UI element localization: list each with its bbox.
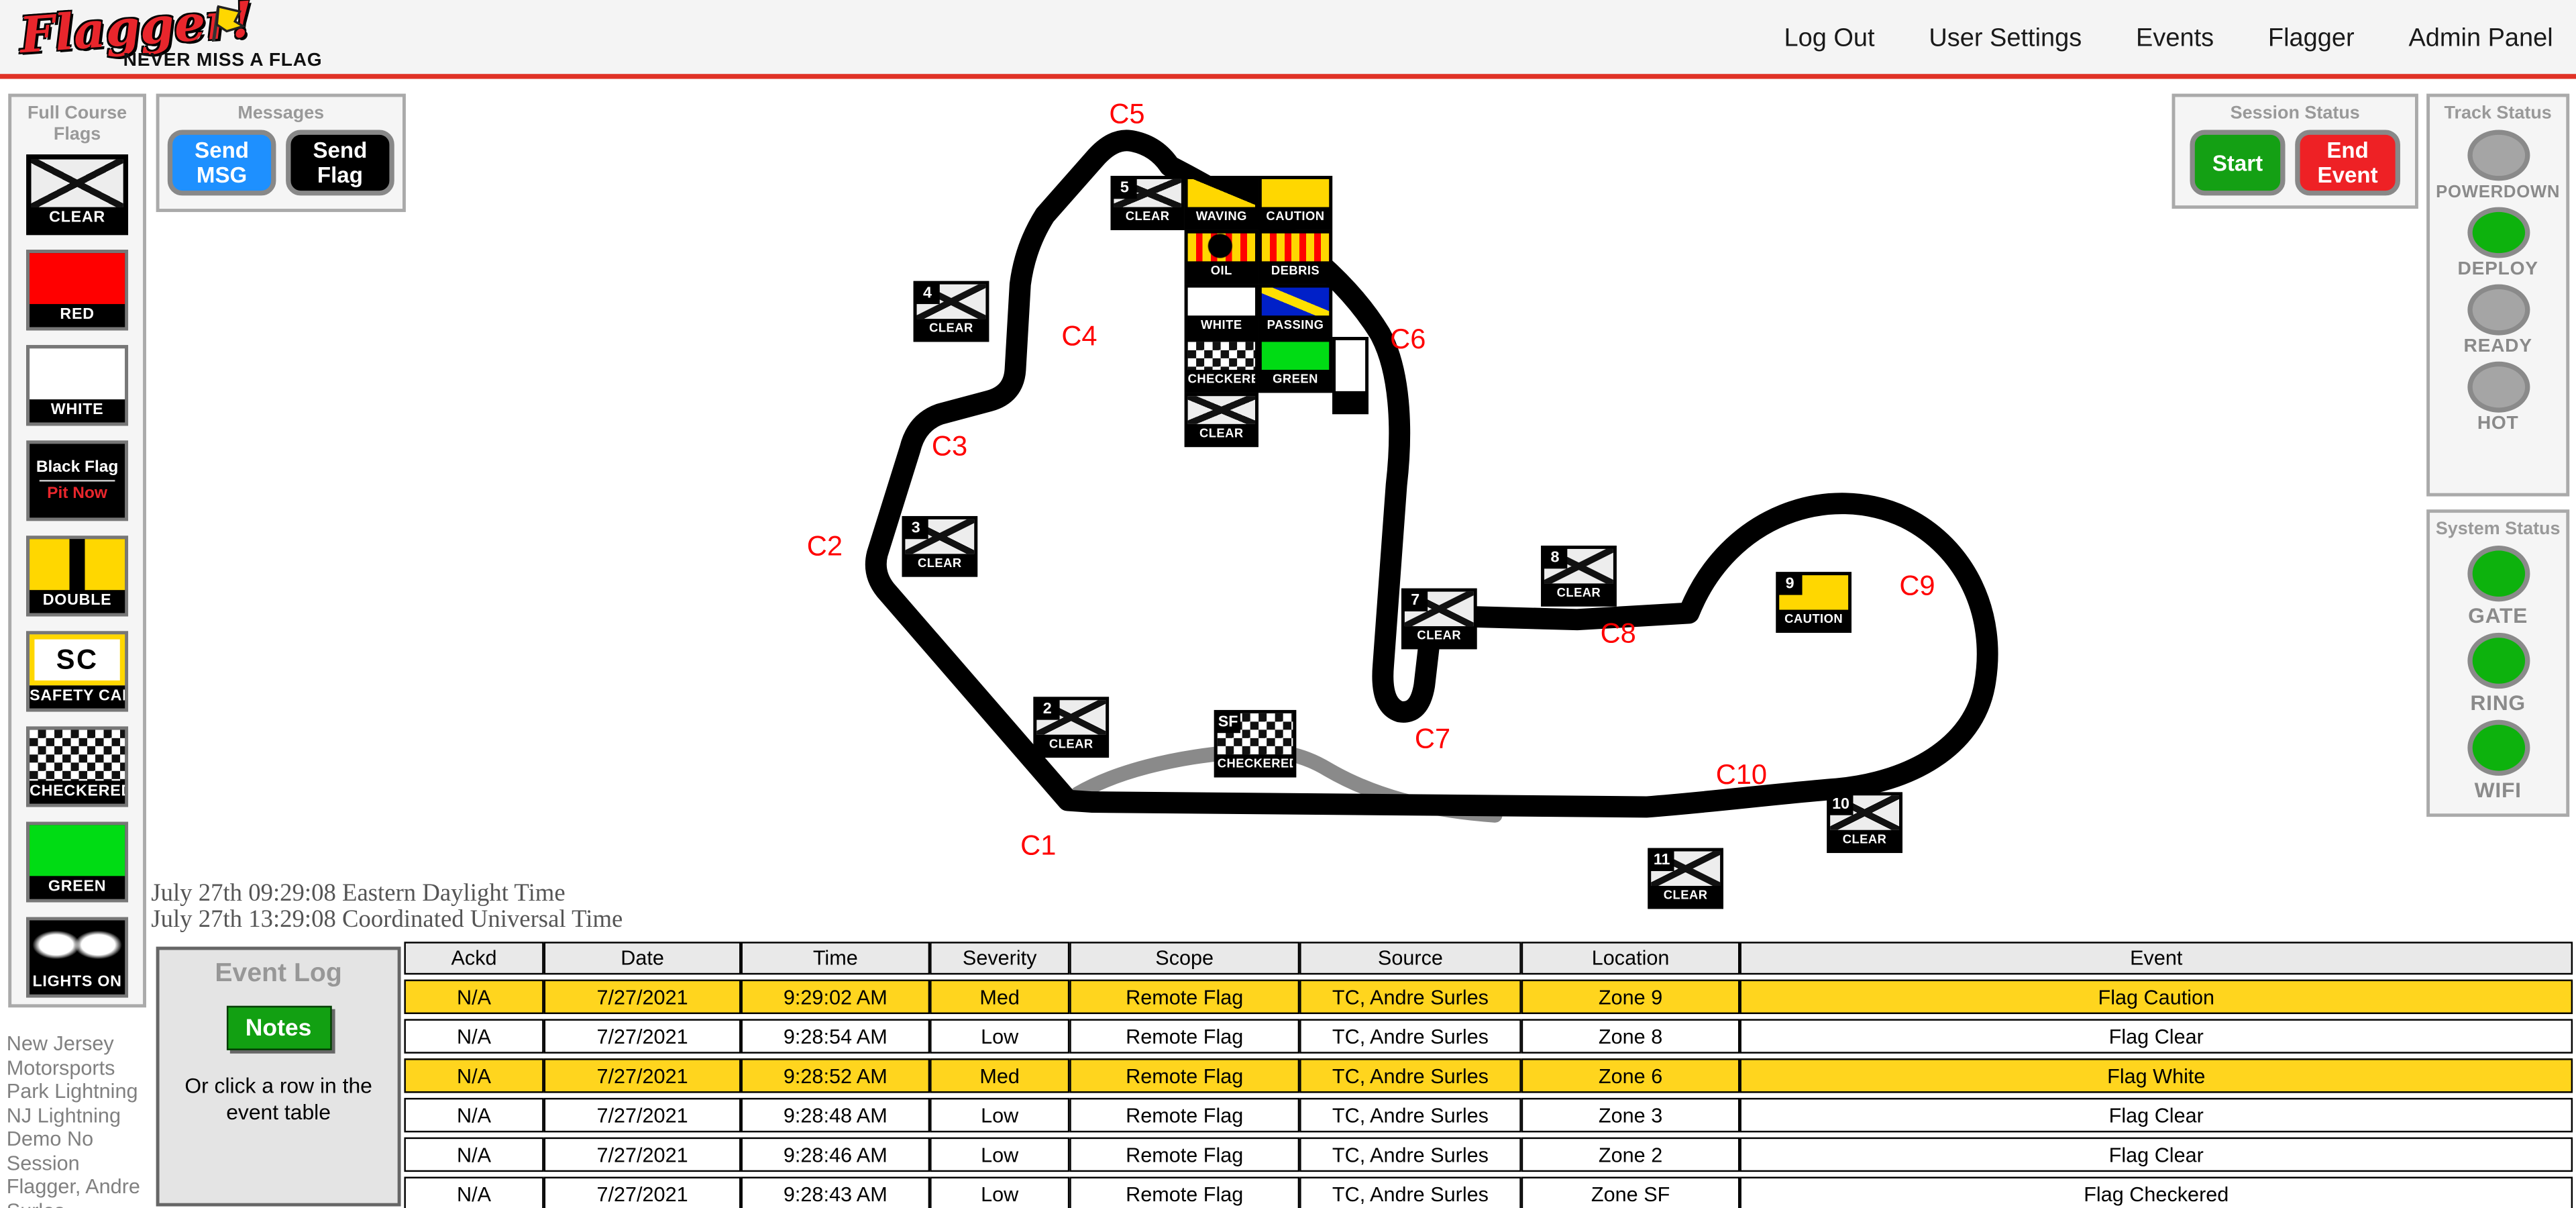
corner-label-C10: C10 [1716,758,1767,790]
station-flag-label: CLEAR [1036,735,1106,754]
passing-flag-face [1262,288,1329,316]
station-8-flag[interactable]: 8CLEAR [1541,546,1617,607]
station-flag-label: CLEAR [1114,207,1181,227]
event-row[interactable]: N/A7/27/20219:28:52 AMMedRemote FlagTC, … [404,1058,2573,1093]
event-cell-ackd: N/A [404,1019,543,1053]
flag-button-checkered[interactable]: CHECKERED [26,726,128,807]
flag-button-black-pit[interactable]: Black FlagPit Now [26,440,128,521]
track-status-title: Track Status [2430,103,2566,125]
station5-option-clear[interactable]: 5CLEAR [1111,176,1185,230]
system-status-panel: System Status GATERINGWIFI [2426,509,2569,817]
session-status-title: Session Status [2175,103,2415,125]
event-cell-severity: Med [930,980,1069,1014]
flag-button-lights-on[interactable]: LIGHTS ON [26,917,128,998]
station-11-flag[interactable]: 11CLEAR [1648,848,1723,909]
logo-flag-icon [204,1,247,44]
nav-log-out[interactable]: Log Out [1784,25,1874,54]
station5-option-green[interactable]: GREEN [1258,338,1332,393]
event-log-title: Event Log [160,960,398,989]
status-indicator-powerdown: POWERDOWN [2430,130,2566,202]
double-flag-face [30,539,125,590]
red-flag-face [30,253,125,304]
status-light-ready [2467,285,2529,336]
event-cell-location: Zone 8 [1521,1019,1740,1053]
event-cell-date: 7/27/2021 [544,1019,741,1053]
station-flag-label: CLEAR [1651,886,1720,905]
status-light-deploy [2467,207,2529,258]
event-cell-time: 9:28:54 AM [741,1019,930,1053]
station-flag-label: CLEAR [1830,830,1899,850]
checkered-flag-face [30,729,125,781]
station-4-flag[interactable]: 4CLEAR [914,281,989,342]
status-light-ring [2467,633,2529,689]
event-cell-location: Zone SF [1521,1176,1740,1208]
divider [40,480,115,481]
status-light-wifi [2467,720,2529,776]
station-flag-label: DEBRIS [1262,261,1329,281]
pit-now-label: Pit Now [47,485,107,503]
full-course-flags-title: Full Course Flags [19,103,134,146]
oil-flag-face [1188,234,1255,262]
flag-button-double[interactable]: DOUBLE [26,536,128,616]
event-cell-source: TC, Andre Surles [1299,980,1521,1014]
flagger-app: Flagger! NEVER MISS A FLAG Log OutUser S… [0,0,2576,1208]
station-flag-label: OIL [1188,261,1255,281]
corner-labels: C1C2C3C4C5C6C7C8C9C10 [807,98,1935,861]
flag-button-green[interactable]: GREEN [26,821,128,902]
event-cell-location: Zone 2 [1521,1138,1740,1172]
corner-label-C6: C6 [1390,323,1426,354]
status-indicator-wifi: WIFI [2430,720,2566,802]
status-light-powerdown [2467,130,2529,181]
top-nav: Log OutUser SettingsEventsFlaggerAdmin P… [1784,0,2553,79]
station-number-badge: 3 [904,517,928,539]
station-flag-label: CLEAR [1405,626,1474,646]
corner-label-C7: C7 [1415,722,1450,754]
status-label: READY [2464,337,2532,356]
status-light-hot [2467,362,2529,413]
event-cell-scope: Remote Flag [1069,1176,1299,1208]
nav-flagger[interactable]: Flagger [2268,25,2355,54]
event-cell-source: TC, Andre Surles [1299,1138,1521,1172]
station5-option-white[interactable]: WHITE [1185,285,1258,339]
station-flag-label: WHITE [1188,315,1255,335]
event-cell-scope: Remote Flag [1069,1019,1299,1053]
station-number-badge: 5 [1112,177,1137,199]
full-course-flag-list: CLEARREDWHITEBlack FlagPit NowDOUBLESCSA… [11,154,143,997]
station-10-flag[interactable]: 10CLEAR [1827,792,1902,853]
event-cell-location: Zone 3 [1521,1098,1740,1132]
flag-button-label: CLEAR [32,207,123,230]
station-3-flag[interactable]: 3CLEAR [902,516,977,577]
lights-flag-face [30,920,125,971]
column-header-date: Date [544,942,741,974]
full-course-flags-panel: Full Course Flags CLEARREDWHITEBlack Fla… [8,94,146,1008]
station5-option-caution[interactable]: CAUTION [1258,176,1332,230]
event-cell-location: Zone 6 [1521,1058,1740,1093]
sc-flag-text: SC [56,644,99,676]
column-header-scope: Scope [1069,942,1299,974]
station5-option-debris[interactable]: DEBRIS [1258,230,1332,285]
station-flag-label [1336,391,1365,411]
logo-tagline: NEVER MISS A FLAG [123,51,323,70]
flag-button-white[interactable]: WHITE [26,345,128,425]
clear-flag-face [1188,396,1255,424]
station-7-flag[interactable]: 7CLEAR [1401,589,1477,650]
notes-button[interactable]: Notes [226,1006,331,1050]
event-cell-source: TC, Andre Surles [1299,1019,1521,1053]
black-flag-label: Black Flag [36,458,119,476]
event-cell-severity: Low [930,1019,1069,1053]
event-cell-event: Flag Caution [1739,980,2573,1014]
corner-label-C9: C9 [1899,570,1935,601]
corner-label-C2: C2 [807,530,843,562]
event-cell-ackd: N/A [404,980,543,1014]
system-status-indicators: GATERINGWIFI [2430,546,2566,802]
station-flag-label: CLEAR [1544,583,1613,603]
status-indicator-deploy: DEPLOY [2430,207,2566,280]
session-status-panel: Session Status Start End Event [2172,94,2418,209]
event-cell-ackd: N/A [404,1058,543,1093]
event-cell-date: 7/27/2021 [544,980,741,1014]
event-cell-event: Flag Clear [1739,1138,2573,1172]
station-flag-label: CLEAR [905,554,974,573]
station-flag-label: CLEAR [1188,424,1255,444]
green-flag-face [30,825,125,876]
status-indicator-hot: HOT [2430,362,2566,434]
flag-button-clear[interactable]: CLEAR [26,154,128,235]
event-cell-date: 7/27/2021 [544,1138,741,1172]
event-log-panel: Event Log Notes Or click a row in the ev… [156,947,401,1207]
status-label: HOT [2477,414,2519,434]
station-number-badge: 11 [1650,850,1674,871]
event-cell-scope: Remote Flag [1069,1138,1299,1172]
flag-button-label: WHITE [30,399,125,422]
facility-info: New Jersey Motorsports Park Lightning NJ… [7,1032,158,1208]
column-header-location: Location [1521,942,1740,974]
logo: Flagger! NEVER MISS A FLAG [19,0,253,58]
track-status-panel: Track Status POWERDOWNDEPLOYREADYHOT [2426,94,2569,497]
event-cell-event: Flag Clear [1739,1098,2573,1132]
status-label: GATE [2468,603,2528,628]
event-row[interactable]: N/A7/27/20219:28:46 AMLowRemote FlagTC, … [404,1138,2573,1172]
event-cell-scope: Remote Flag [1069,1098,1299,1132]
sc-flag-face: SC [30,634,125,685]
event-row[interactable]: N/A7/27/20219:29:02 AMMedRemote FlagTC, … [404,980,2573,1014]
station-flag-label: CLEAR [917,319,986,338]
event-cell-time: 9:28:43 AM [741,1176,930,1208]
event-cell-location: Zone 9 [1521,980,1740,1014]
clock-utc: July 27th 13:29:08 Coordinated Universal… [151,907,623,936]
nav-admin-panel[interactable]: Admin Panel [2408,25,2553,54]
event-cell-ackd: N/A [404,1138,543,1172]
flag-button-label: CHECKERED [30,781,125,803]
station5-option-clear[interactable]: CLEAR [1185,393,1258,447]
event-cell-severity: Low [930,1138,1069,1172]
station-9-flag[interactable]: 9CAUTION [1776,572,1851,633]
column-header-ackd: Ackd [404,942,543,974]
status-label: WIFI [2475,777,2522,802]
white-flag-face [30,348,125,399]
station5-option-passing[interactable]: PASSING [1258,285,1332,339]
corner-label-C1: C1 [1020,829,1056,860]
corner-label-C4: C4 [1061,319,1097,351]
column-header-time: Time [741,942,930,974]
event-cell-severity: Med [930,1058,1069,1093]
station-number-badge: 8 [1543,548,1568,569]
status-light-gate [2467,546,2529,601]
event-cell-time: 9:28:48 AM [741,1098,930,1132]
event-cell-event: Flag White [1739,1058,2573,1093]
station-flag-label: PASSING [1262,315,1329,335]
event-cell-severity: Low [930,1098,1069,1132]
app-header: Flagger! NEVER MISS A FLAG Log OutUser S… [0,0,2576,79]
station-flag-label: CHECKERED [1218,754,1293,774]
event-cell-time: 9:28:52 AM [741,1058,930,1093]
event-cell-event: Flag Clear [1739,1019,2573,1053]
checkered-flag-face [1188,342,1255,370]
flag-button-label: LIGHTS ON [30,971,125,994]
white-flag-face [1188,288,1255,316]
event-cell-date: 7/27/2021 [544,1098,741,1132]
corner-label-C3: C3 [932,430,967,461]
flag-button-label: DOUBLE [30,590,125,613]
station-number-badge: SF [1216,711,1240,733]
event-cell-source: TC, Andre Surles [1299,1098,1521,1132]
event-cell-time: 9:28:46 AM [741,1138,930,1172]
event-table: AckdDateTimeSeverityScopeSourceLocationE… [404,937,2573,1208]
flag-button-label: SAFETY CAR [30,685,125,708]
flag-button-red[interactable]: RED [26,250,128,330]
event-table-wrap: AckdDateTimeSeverityScopeSourceLocationE… [404,937,2573,1208]
green-flag-face [1262,342,1329,370]
station5-option-checkered[interactable]: CHECKERED [1185,338,1258,393]
track-status-indicators: POWERDOWNDEPLOYREADYHOT [2430,130,2566,434]
event-cell-date: 7/27/2021 [544,1176,741,1208]
black-flag-face: Black FlagPit Now [30,444,125,517]
blank-flag-face [1336,340,1365,391]
station-flag-label: WAVING [1188,207,1255,227]
station5-option-waving[interactable]: WAVING [1185,176,1258,230]
event-row[interactable]: N/A7/27/20219:28:48 AMLowRemote FlagTC, … [404,1098,2573,1132]
station-number-badge: 9 [1778,574,1803,595]
event-cell-scope: Remote Flag [1069,980,1299,1014]
event-cell-ackd: N/A [404,1098,543,1132]
station-number-badge: 4 [915,283,940,304]
flag-button-safety-car[interactable]: SCSAFETY CAR [26,631,128,711]
event-cell-source: TC, Andre Surles [1299,1058,1521,1093]
status-label: DEPLOY [2458,260,2538,279]
station-flag-label: CHECKERED [1188,370,1255,389]
event-table-header: AckdDateTimeSeverityScopeSourceLocationE… [404,942,2573,974]
status-label: RING [2470,691,2526,715]
event-cell-scope: Remote Flag [1069,1058,1299,1093]
event-row[interactable]: N/A7/27/20219:28:43 AMLowRemote FlagTC, … [404,1176,2573,1208]
caution-flag-face [1262,179,1329,207]
station-flag-label: CAUTION [1779,610,1848,630]
status-indicator-gate: GATE [2430,546,2566,627]
start-button[interactable]: Start [2190,130,2285,195]
clock-edt: July 27th 09:29:08 Eastern Daylight Time [151,881,565,909]
system-status-title: System Status [2430,519,2566,541]
station-number-badge: 10 [1829,794,1854,815]
event-cell-ackd: N/A [404,1176,543,1208]
waving-flag-face [1188,179,1255,207]
event-cell-severity: Low [930,1176,1069,1208]
corner-label-C5: C5 [1109,98,1144,130]
station5-option-oil[interactable]: OIL [1185,230,1258,285]
event-log-hint: Or click a row in the event table [160,1073,398,1124]
event-cell-time: 9:29:02 AM [741,980,930,1014]
station-number-badge: 2 [1035,699,1060,720]
event-row[interactable]: N/A7/27/20219:28:54 AMLowRemote FlagTC, … [404,1019,2573,1053]
status-indicator-ring: RING [2430,633,2566,715]
station-flag-label: GREEN [1262,370,1329,389]
station-SF-flag[interactable]: SFCHECKERED [1214,710,1296,777]
flag-button-label: RED [30,304,125,327]
corner-label-C8: C8 [1601,617,1636,649]
nav-events[interactable]: Events [2136,25,2214,54]
end-event-button[interactable]: End Event [2295,130,2400,195]
clear-flag-face [32,160,123,207]
partial-flag-option[interactable] [1332,337,1368,414]
nav-user-settings[interactable]: User Settings [1929,25,2082,54]
column-header-event: Event [1739,942,2573,974]
event-cell-event: Flag Checkered [1739,1176,2573,1208]
station-number-badge: 7 [1403,590,1428,611]
status-indicator-ready: READY [2430,285,2566,357]
debris-flag-face [1262,234,1329,262]
column-header-severity: Severity [930,942,1069,974]
flag-button-label: GREEN [30,876,125,899]
station-2-flag[interactable]: 2CLEAR [1033,697,1109,758]
event-cell-date: 7/27/2021 [544,1058,741,1093]
status-label: POWERDOWN [2436,183,2560,202]
event-cell-source: TC, Andre Surles [1299,1176,1521,1208]
station-flag-label: CAUTION [1262,207,1329,227]
column-header-source: Source [1299,942,1521,974]
